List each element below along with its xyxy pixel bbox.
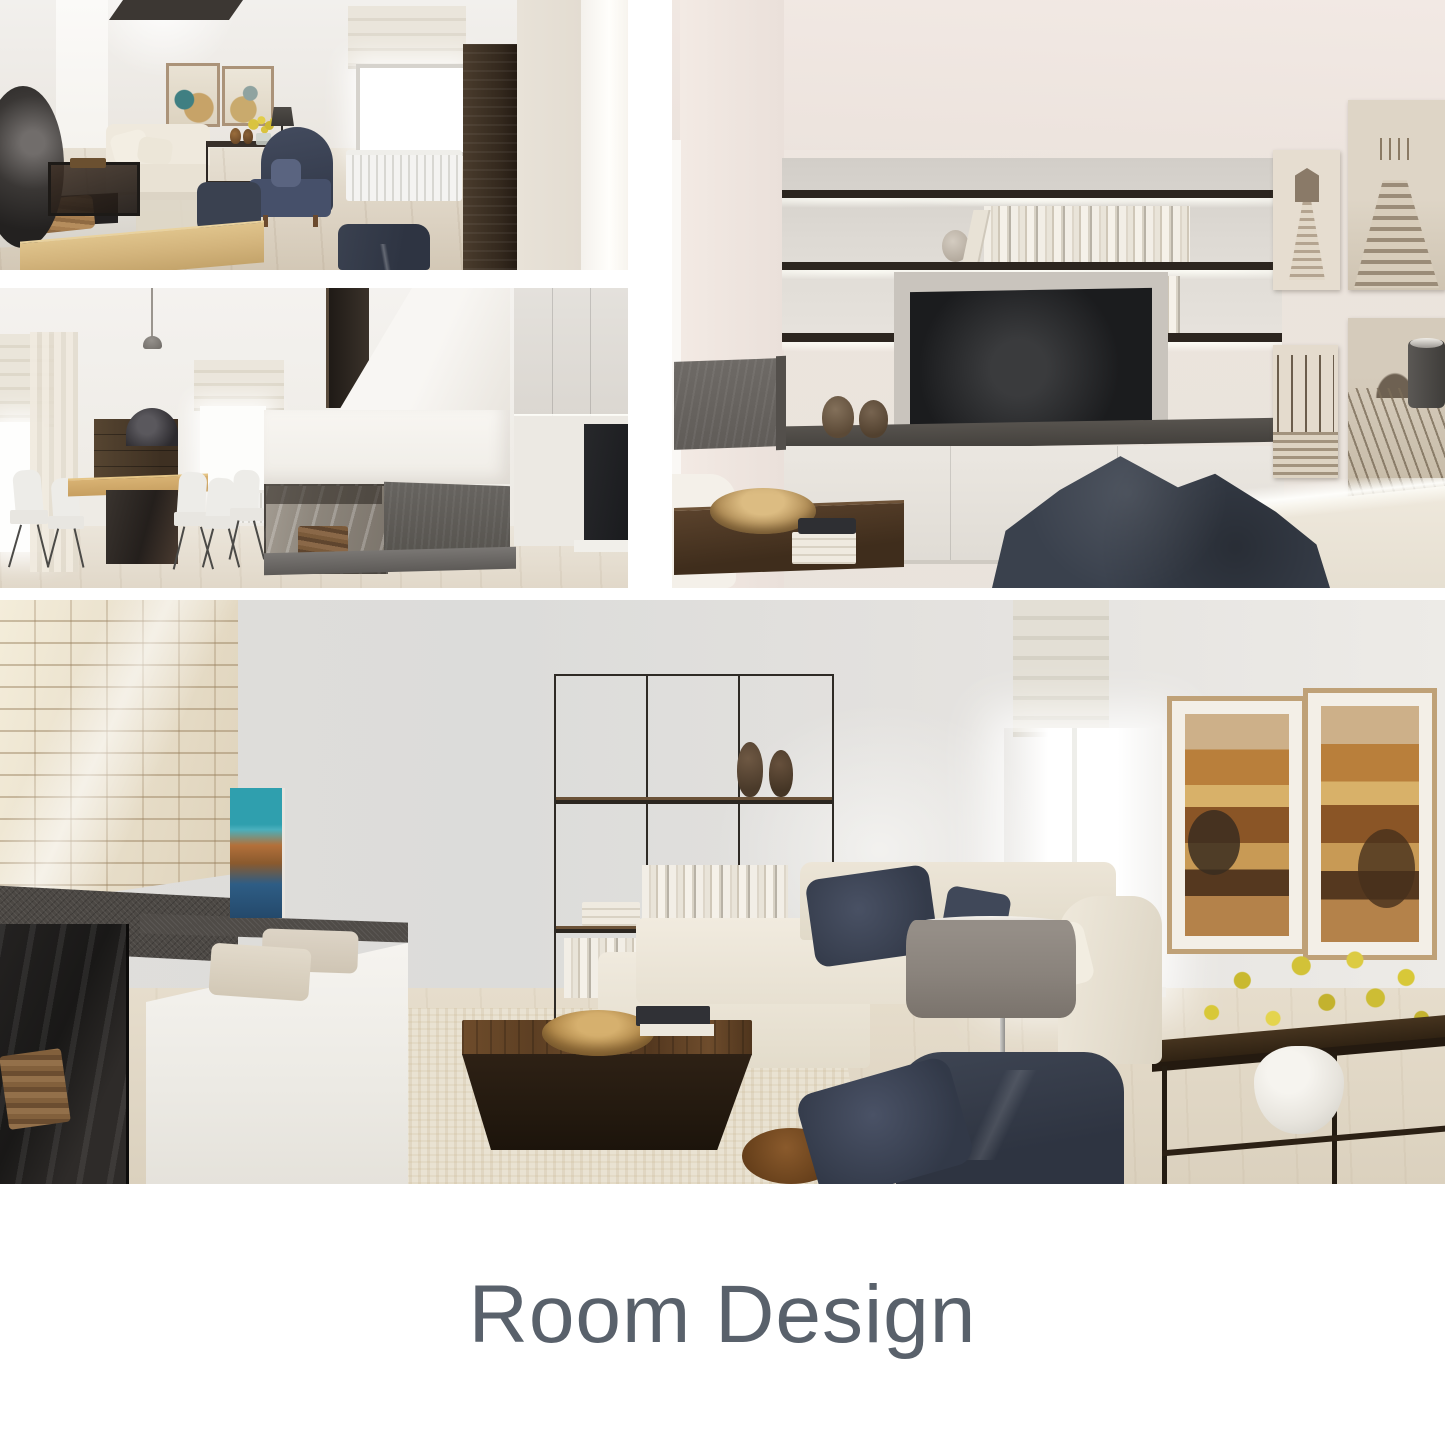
pendant-cord xyxy=(151,288,153,338)
stone-light-streak xyxy=(0,600,238,918)
dining-chair-seat xyxy=(230,508,264,521)
coffee-table-shadow xyxy=(462,1054,752,1150)
sofa-pillow xyxy=(136,136,173,166)
panel-tv-wall xyxy=(672,0,1445,588)
tv-panel xyxy=(584,424,628,542)
sheer-curtain xyxy=(581,0,628,270)
roman-shade-center xyxy=(194,360,284,411)
rust-abstract-frame xyxy=(1303,688,1437,960)
radiator xyxy=(346,150,462,201)
wood-tray xyxy=(70,158,106,168)
floating-shelf xyxy=(782,262,1282,270)
dining-chair-seat xyxy=(48,516,84,529)
pendant-lamp xyxy=(143,336,162,349)
fireplace-inner-shadow xyxy=(266,486,382,504)
dining-chair-seat xyxy=(10,510,48,524)
pier-railing-motif xyxy=(1380,138,1414,160)
navy-chair-pillow xyxy=(271,159,301,187)
white-wall-column xyxy=(672,140,681,520)
taupe-drum-lamp-shade xyxy=(906,920,1076,1018)
floor-lamp-shade xyxy=(271,107,294,126)
pear-vase xyxy=(737,742,763,797)
title-strip: Room Design xyxy=(0,1184,1445,1445)
panel-main-living-room xyxy=(0,600,1445,1184)
white-book xyxy=(640,1024,714,1036)
upper-cabinets xyxy=(514,288,628,416)
console-leg xyxy=(1162,1066,1167,1184)
television xyxy=(910,288,1152,438)
textured-wall-strip xyxy=(517,0,581,270)
cabinet-wood-grain xyxy=(463,44,517,270)
abstract-art-blob xyxy=(1358,829,1415,908)
panel-dining-area xyxy=(0,288,628,588)
abstract-art-blob xyxy=(1188,810,1240,874)
white-counter xyxy=(574,540,628,552)
pear-vase xyxy=(769,750,793,797)
tablet xyxy=(636,1006,710,1026)
chair-leg xyxy=(313,215,318,227)
glass-side-table xyxy=(48,162,140,216)
slate-panel-edge xyxy=(776,356,786,451)
framed-picture-left xyxy=(166,63,220,127)
ceiling-beam xyxy=(109,0,243,20)
firewood-logs xyxy=(0,1048,71,1130)
book-stack xyxy=(792,532,856,564)
cabinet-seam xyxy=(552,288,553,416)
abstract-art xyxy=(1321,706,1419,942)
page-title: Room Design xyxy=(469,1268,977,1362)
teal-abstract-painting xyxy=(230,788,285,918)
deck-motif xyxy=(1273,432,1338,478)
white-divider-box xyxy=(264,410,510,484)
floating-shelf xyxy=(782,190,1282,198)
cabinet-seam xyxy=(950,446,951,560)
slate-wall-panel xyxy=(674,358,778,450)
window xyxy=(356,64,468,156)
lamp-shade-rim xyxy=(1410,338,1443,348)
ceiling xyxy=(672,0,1445,150)
roman-shade xyxy=(348,6,466,69)
tablet xyxy=(798,518,856,534)
bench-cushion xyxy=(208,943,311,1002)
cabinet-seam xyxy=(590,288,591,416)
dining-table-base xyxy=(106,490,178,564)
pear-vase xyxy=(822,396,854,438)
gray-lamp-shade xyxy=(1408,340,1445,408)
panel-living-room-fireplace xyxy=(0,0,628,270)
book-row xyxy=(984,206,1190,262)
stool-highlight xyxy=(372,244,398,270)
rust-abstract-frame xyxy=(1167,696,1307,954)
slate-panel xyxy=(384,482,510,556)
book-stack xyxy=(582,902,640,926)
book-row xyxy=(642,865,788,926)
roman-shade xyxy=(1013,600,1109,737)
room-design-collage-page: Room Design xyxy=(0,0,1445,1445)
pear-vase xyxy=(859,400,888,438)
shelf-board xyxy=(556,797,832,804)
bronze-vase xyxy=(230,128,241,144)
